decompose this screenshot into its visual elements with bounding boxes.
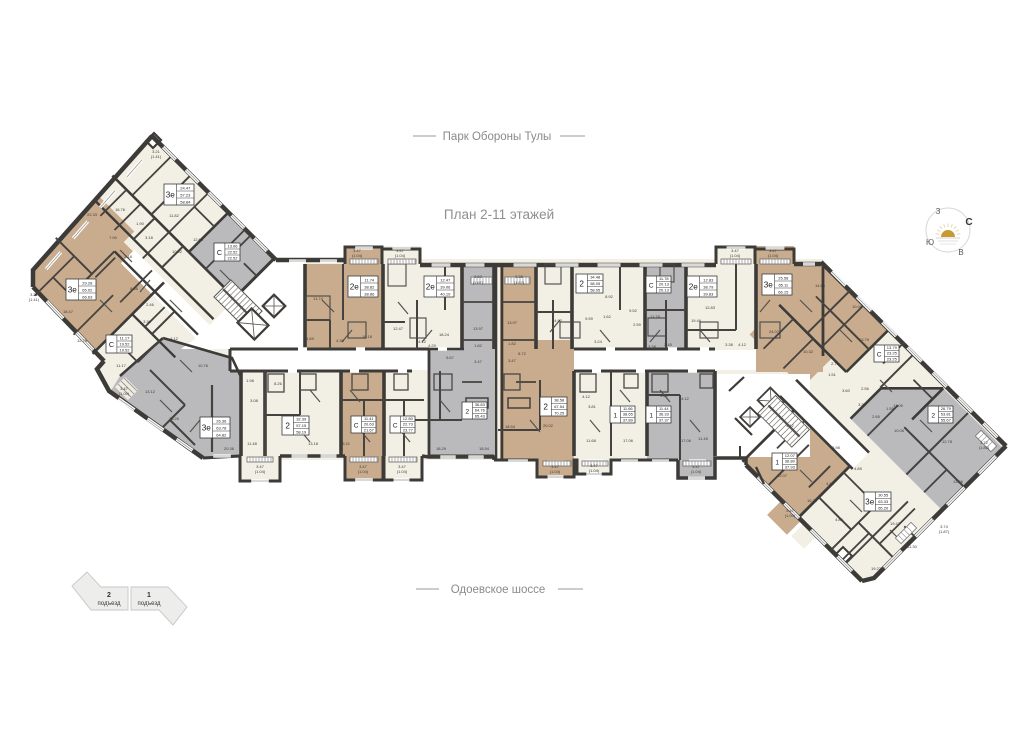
svg-text:10.92: 10.92: [172, 249, 183, 254]
svg-text:(1.87): (1.87): [939, 529, 950, 534]
svg-text:13.18: 13.18: [308, 441, 319, 446]
svg-text:13.79: 13.79: [859, 337, 870, 342]
svg-text:16.72: 16.72: [807, 498, 818, 503]
svg-text:3.38: 3.38: [725, 342, 734, 347]
svg-text:1: 1: [775, 459, 779, 466]
svg-text:(1.04): (1.04): [255, 469, 266, 474]
svg-text:1: 1: [613, 412, 617, 419]
svg-text:(1.86): (1.86): [979, 445, 990, 450]
svg-text:С: С: [965, 217, 972, 228]
svg-text:4.30: 4.30: [336, 338, 345, 343]
svg-text:подъезд: подъезд: [98, 601, 121, 607]
svg-text:10.76: 10.76: [198, 363, 209, 368]
svg-text:(1.04): (1.04): [358, 469, 369, 474]
svg-text:16.76: 16.76: [115, 207, 126, 212]
svg-text:25.58: 25.58: [778, 275, 789, 280]
svg-text:65.43: 65.43: [475, 413, 486, 418]
svg-text:22.33: 22.33: [87, 212, 98, 217]
svg-text:2: 2: [465, 408, 469, 415]
svg-text:11.41: 11.41: [364, 416, 374, 421]
svg-text:1.82: 1.82: [474, 343, 483, 348]
svg-text:9.59: 9.59: [585, 316, 594, 321]
svg-text:(1.04): (1.04): [730, 253, 741, 258]
svg-text:11.17: 11.17: [120, 335, 130, 340]
svg-text:12.07: 12.07: [777, 473, 788, 478]
svg-text:23.25: 23.25: [887, 356, 898, 361]
svg-text:13.26: 13.26: [169, 416, 180, 421]
svg-text:19.22: 19.22: [871, 566, 882, 571]
svg-text:11.78: 11.78: [650, 314, 660, 319]
svg-text:38.65: 38.65: [623, 412, 634, 417]
svg-text:4.69: 4.69: [306, 336, 315, 341]
svg-text:58.19: 58.19: [296, 429, 307, 434]
svg-text:3.36: 3.36: [143, 319, 152, 324]
svg-text:2е: 2е: [689, 282, 699, 291]
svg-text:3е: 3е: [764, 280, 774, 289]
svg-text:37.89: 37.89: [623, 417, 634, 422]
svg-text:12.47: 12.47: [393, 326, 404, 331]
svg-text:26.79: 26.79: [941, 406, 952, 411]
svg-text:10.00: 10.00: [852, 304, 863, 309]
svg-text:3е: 3е: [166, 190, 176, 199]
svg-text:3.47: 3.47: [474, 359, 483, 364]
svg-text:11.05: 11.05: [893, 403, 903, 408]
svg-text:2.46: 2.46: [146, 302, 155, 307]
svg-text:8.72: 8.72: [518, 351, 527, 356]
svg-text:3.18: 3.18: [145, 235, 154, 240]
svg-text:подъезд: подъезд: [138, 601, 161, 607]
svg-text:11.30: 11.30: [907, 544, 917, 549]
svg-text:53.81: 53.81: [941, 412, 952, 417]
svg-text:(1.41): (1.41): [151, 154, 162, 159]
svg-text:(1.04): (1.04): [589, 468, 600, 473]
svg-text:(1.41): (1.41): [29, 297, 40, 302]
svg-text:18.54: 18.54: [505, 424, 516, 429]
svg-text:32.39: 32.39: [296, 417, 307, 422]
svg-text:12.47: 12.47: [440, 277, 451, 282]
svg-text:64.82: 64.82: [216, 432, 227, 437]
svg-text:18.47: 18.47: [63, 309, 74, 314]
svg-text:18.24: 18.24: [439, 332, 450, 337]
svg-text:36.83: 36.83: [475, 402, 486, 407]
svg-text:Одоевское шоссе: Одоевское шоссе: [451, 584, 546, 596]
svg-text:3.60: 3.60: [842, 388, 851, 393]
svg-text:39.83: 39.83: [703, 291, 714, 296]
svg-text:24.47: 24.47: [180, 185, 191, 190]
svg-text:66.63: 66.63: [82, 294, 93, 299]
svg-text:2.73: 2.73: [831, 361, 840, 366]
svg-text:13.97: 13.97: [473, 326, 484, 331]
svg-text:12.78: 12.78: [77, 338, 88, 343]
svg-text:19.52: 19.52: [119, 347, 130, 352]
svg-text:(1.67): (1.67): [473, 280, 484, 285]
svg-text:20.36: 20.36: [224, 446, 235, 451]
svg-text:1: 1: [649, 412, 653, 419]
svg-text:13.12: 13.12: [145, 389, 156, 394]
svg-text:1.90: 1.90: [136, 221, 145, 226]
svg-text:20.13: 20.13: [659, 287, 670, 292]
svg-text:(1.04): (1.04): [395, 253, 406, 258]
svg-text:13.06: 13.06: [227, 243, 238, 248]
svg-text:В: В: [958, 248, 963, 257]
svg-text:14.65: 14.65: [815, 283, 826, 288]
svg-text:67.54: 67.54: [554, 404, 565, 409]
svg-text:2.45: 2.45: [664, 342, 673, 347]
svg-text:10.32: 10.32: [803, 349, 814, 354]
svg-text:13.97: 13.97: [507, 320, 518, 325]
svg-text:19.46: 19.46: [691, 318, 702, 323]
svg-text:12.65: 12.65: [193, 237, 204, 242]
svg-text:С: С: [217, 248, 222, 257]
svg-text:2: 2: [931, 412, 935, 419]
svg-text:66.15: 66.15: [778, 289, 789, 294]
svg-text:11.78: 11.78: [659, 276, 669, 281]
svg-text:38.86: 38.86: [364, 291, 375, 296]
svg-text:11.48: 11.48: [247, 441, 257, 446]
svg-text:22.73: 22.73: [403, 422, 414, 427]
svg-text:65.20: 65.20: [878, 505, 889, 510]
svg-text:8.36: 8.36: [130, 286, 139, 291]
svg-text:(1.04): (1.04): [691, 469, 702, 474]
svg-text:14.92: 14.92: [552, 318, 563, 323]
svg-text:С: С: [354, 422, 359, 429]
svg-text:19.21: 19.21: [340, 441, 351, 446]
svg-text:36.33: 36.33: [659, 412, 670, 417]
svg-text:24.07: 24.07: [769, 329, 780, 334]
svg-text:37.37: 37.37: [659, 417, 670, 422]
svg-text:3.98: 3.98: [832, 445, 841, 450]
svg-text:20.13: 20.13: [659, 282, 670, 287]
svg-text:22.52: 22.52: [227, 249, 238, 254]
svg-text:19.47: 19.47: [890, 521, 901, 526]
svg-text:30.55: 30.55: [878, 493, 889, 498]
svg-text:11.68: 11.68: [586, 438, 596, 443]
svg-text:58.84: 58.84: [180, 199, 191, 204]
svg-text:2: 2: [285, 421, 290, 430]
svg-text:22.52: 22.52: [227, 255, 238, 260]
svg-text:57.15: 57.15: [296, 423, 307, 428]
svg-text:3.30: 3.30: [858, 402, 867, 407]
svg-text:21.67: 21.67: [364, 427, 375, 432]
svg-text:17.06: 17.06: [623, 438, 634, 443]
svg-text:26.36: 26.36: [216, 418, 227, 423]
svg-text:11.44: 11.44: [659, 406, 669, 411]
svg-text:11.66: 11.66: [623, 406, 633, 411]
svg-text:4.12: 4.12: [786, 423, 795, 428]
svg-text:38.82: 38.82: [364, 284, 375, 289]
svg-text:(1.04): (1.04): [550, 469, 561, 474]
svg-text:63.78: 63.78: [216, 425, 227, 430]
svg-text:3.24: 3.24: [594, 339, 603, 344]
svg-text:4.12: 4.12: [681, 396, 690, 401]
svg-text:10.06: 10.06: [894, 428, 905, 433]
svg-text:18.29: 18.29: [436, 446, 447, 451]
svg-text:55.67: 55.67: [941, 417, 952, 422]
svg-text:9.52: 9.52: [629, 308, 638, 313]
svg-text:С: С: [109, 340, 114, 349]
svg-text:57.23: 57.23: [180, 192, 191, 197]
svg-text:(1.04): (1.04): [352, 253, 363, 258]
svg-text:39.06: 39.06: [440, 284, 451, 289]
svg-text:План 2-11 этажей: План 2-11 этажей: [444, 207, 554, 222]
svg-text:17.06: 17.06: [681, 438, 692, 443]
svg-text:4.12: 4.12: [582, 394, 591, 399]
svg-text:3.08: 3.08: [250, 398, 259, 403]
svg-text:34.48: 34.48: [590, 275, 601, 280]
svg-text:8.92: 8.92: [605, 294, 614, 299]
svg-text:2е: 2е: [426, 282, 436, 291]
svg-text:11.45: 11.45: [698, 436, 708, 441]
svg-text:4.12: 4.12: [170, 336, 179, 341]
svg-text:С: С: [393, 422, 398, 429]
svg-text:Парк Обороны Тулы: Парк Обороны Тулы: [443, 131, 552, 143]
svg-text:(1.00): (1.00): [785, 513, 796, 518]
svg-text:36.80: 36.80: [785, 459, 796, 464]
svg-text:4.12: 4.12: [738, 342, 747, 347]
svg-text:7.90: 7.90: [109, 235, 118, 240]
svg-text:38.79: 38.79: [703, 284, 714, 289]
svg-text:58.05: 58.05: [590, 281, 601, 286]
svg-text:18.18: 18.18: [362, 334, 373, 339]
svg-text:4.12: 4.12: [418, 339, 427, 344]
svg-text:13.79: 13.79: [887, 345, 898, 350]
svg-text:64.76: 64.76: [475, 408, 486, 413]
svg-text:13.96: 13.96: [953, 479, 964, 484]
svg-text:3е: 3е: [202, 423, 212, 432]
svg-text:19.52: 19.52: [119, 341, 130, 346]
svg-text:70.25: 70.25: [554, 410, 565, 415]
svg-text:2: 2: [579, 279, 584, 288]
svg-text:65.11: 65.11: [778, 282, 788, 287]
svg-text:11.74: 11.74: [313, 296, 323, 301]
svg-text:С: С: [649, 282, 654, 289]
svg-text:(1.04): (1.04): [768, 253, 779, 258]
svg-text:3.81: 3.81: [588, 404, 597, 409]
svg-text:12.80: 12.80: [403, 416, 414, 421]
svg-text:40.10: 40.10: [440, 291, 451, 296]
svg-text:3.53: 3.53: [474, 274, 483, 279]
svg-text:(1.04): (1.04): [397, 469, 408, 474]
svg-text:11.82: 11.82: [169, 213, 179, 218]
svg-text:11.74: 11.74: [364, 277, 374, 282]
svg-text:3.69: 3.69: [660, 393, 669, 398]
svg-text:З: З: [936, 207, 941, 216]
svg-text:23.77: 23.77: [403, 427, 414, 432]
svg-text:8.26: 8.26: [274, 381, 283, 386]
svg-text:2.59: 2.59: [633, 322, 642, 327]
svg-text:(1.67): (1.67): [514, 280, 525, 285]
svg-text:С: С: [877, 351, 882, 358]
svg-text:4.46: 4.46: [826, 481, 835, 486]
svg-text:2.65: 2.65: [872, 414, 881, 419]
svg-text:12.78: 12.78: [942, 439, 953, 444]
svg-text:38.58: 38.58: [554, 398, 565, 403]
svg-text:4.29: 4.29: [428, 343, 437, 348]
svg-text:(1.00): (1.00): [119, 391, 130, 396]
svg-text:20.02: 20.02: [543, 423, 554, 428]
svg-text:58.05: 58.05: [590, 287, 601, 292]
svg-text:5.67: 5.67: [446, 355, 455, 360]
svg-text:1.62: 1.62: [603, 314, 612, 319]
svg-text:3.47: 3.47: [508, 358, 517, 363]
svg-text:12.83: 12.83: [703, 277, 714, 282]
svg-text:Ю: Ю: [926, 238, 934, 247]
svg-text:20.63: 20.63: [364, 422, 375, 427]
svg-text:4.85: 4.85: [854, 466, 863, 471]
svg-text:37.93: 37.93: [785, 464, 796, 469]
svg-text:3.18: 3.18: [124, 254, 133, 259]
svg-text:1.51: 1.51: [828, 372, 837, 377]
svg-text:12.83: 12.83: [705, 305, 716, 310]
svg-text:65.02: 65.02: [82, 287, 93, 292]
svg-text:2.56: 2.56: [861, 386, 870, 391]
svg-text:2е: 2е: [350, 282, 360, 291]
svg-text:11.17: 11.17: [116, 363, 126, 368]
svg-text:2: 2: [107, 592, 111, 599]
svg-text:3.35: 3.35: [515, 274, 524, 279]
svg-text:3е: 3е: [865, 497, 875, 506]
svg-text:1: 1: [147, 592, 151, 599]
svg-text:1.82: 1.82: [508, 341, 517, 346]
svg-text:63.33: 63.33: [878, 499, 889, 504]
svg-text:18.54: 18.54: [479, 446, 490, 451]
svg-text:29.28: 29.28: [82, 280, 93, 285]
svg-text:12.07: 12.07: [785, 453, 796, 458]
svg-text:1.98: 1.98: [246, 378, 255, 383]
svg-text:3.38: 3.38: [648, 344, 657, 349]
svg-text:4.80: 4.80: [835, 517, 844, 522]
svg-text:3е: 3е: [68, 285, 78, 294]
svg-text:23.25: 23.25: [887, 351, 898, 356]
svg-text:2: 2: [543, 402, 548, 411]
